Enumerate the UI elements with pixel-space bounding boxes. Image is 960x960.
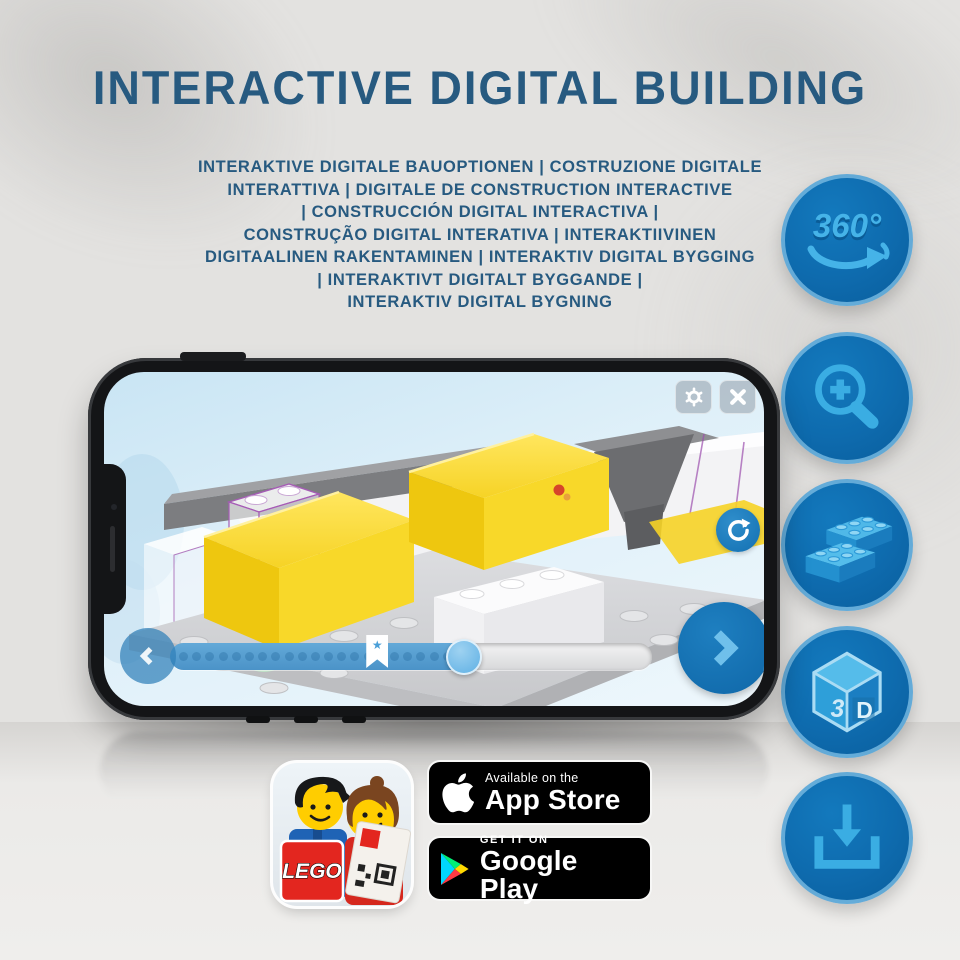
- progress-dot: [298, 652, 307, 661]
- rotation-arrow-icon: [803, 241, 891, 275]
- chevron-right-icon: [702, 626, 746, 670]
- magnifier-plus-icon: [805, 356, 889, 440]
- lego-logo-text: LEGO: [282, 860, 342, 883]
- feature-360-rotation: 360°: [781, 174, 913, 306]
- gear-icon: [683, 386, 705, 408]
- smartphone-landscape: ★: [88, 358, 780, 720]
- progress-dot: [430, 652, 439, 661]
- lego-app-artwork: LEGO: [273, 763, 411, 906]
- next-step-button[interactable]: [678, 602, 764, 694]
- progress-dot: [337, 652, 346, 661]
- google-play-icon: [441, 852, 470, 886]
- phone-notch: [104, 464, 126, 614]
- download-icon: [803, 794, 891, 882]
- progress-dot: [403, 652, 412, 661]
- chevron-left-icon: [135, 643, 161, 669]
- progress-dot: [285, 652, 294, 661]
- app-store-tagline: Available on the: [485, 771, 621, 785]
- phone-volume-button: [180, 352, 246, 361]
- progress-dot: [192, 652, 201, 661]
- google-play-name: Google Play: [480, 847, 638, 903]
- apple-icon: [441, 773, 475, 813]
- progress-dot: [179, 652, 188, 661]
- earpiece-speaker: [110, 526, 115, 572]
- phone-screen: ★: [104, 372, 764, 706]
- previous-step-button[interactable]: [120, 628, 176, 684]
- phone-speaker-port: [342, 716, 366, 723]
- progress-dot: [416, 652, 425, 661]
- progress-dot: [219, 652, 228, 661]
- close-icon: [728, 387, 748, 407]
- google-play-badge[interactable]: GET IT ON Google Play: [429, 838, 650, 899]
- progress-knob[interactable]: [446, 639, 482, 675]
- close-button[interactable]: [719, 380, 756, 414]
- 360-degrees-icon: 360°: [813, 211, 881, 241]
- app-store-badge[interactable]: Available on the App Store: [429, 762, 650, 823]
- cube-face-3: 3: [830, 696, 844, 723]
- subtitle-line: INTERAKTIVE DIGITALE BAUOPTIONEN | COSTR…: [0, 156, 960, 179]
- feature-3d-view: 3 D: [781, 626, 913, 758]
- front-camera: [111, 504, 117, 510]
- progress-dot: [350, 652, 359, 661]
- progress-dot: [390, 652, 399, 661]
- rotate-icon: [725, 517, 751, 543]
- 3d-cube-icon: 3 D: [801, 646, 893, 738]
- build-progress-slider[interactable]: ★: [170, 643, 652, 670]
- progress-dot: [324, 652, 333, 661]
- progress-fill: [170, 643, 464, 670]
- cube-face-d: D: [856, 697, 873, 723]
- app-store-name: App Store: [485, 786, 621, 814]
- lego-bricks-icon: [800, 498, 894, 592]
- progress-dot: [271, 652, 280, 661]
- page-title: INTERACTIVE DIGITAL BUILDING: [0, 60, 960, 115]
- progress-dot: [232, 652, 241, 661]
- reset-rotation-button[interactable]: [716, 508, 760, 552]
- progress-dot: [245, 652, 254, 661]
- lego-app-icon[interactable]: LEGO: [273, 763, 411, 906]
- feature-brick: [781, 479, 913, 611]
- feature-download: [781, 772, 913, 904]
- progress-dot: [258, 652, 267, 661]
- feature-zoom: [781, 332, 913, 464]
- settings-button[interactable]: [675, 380, 712, 414]
- phone-speaker-port: [294, 716, 318, 723]
- phone-speaker-port: [246, 716, 270, 723]
- progress-dot: [205, 652, 214, 661]
- progress-dot: [311, 652, 320, 661]
